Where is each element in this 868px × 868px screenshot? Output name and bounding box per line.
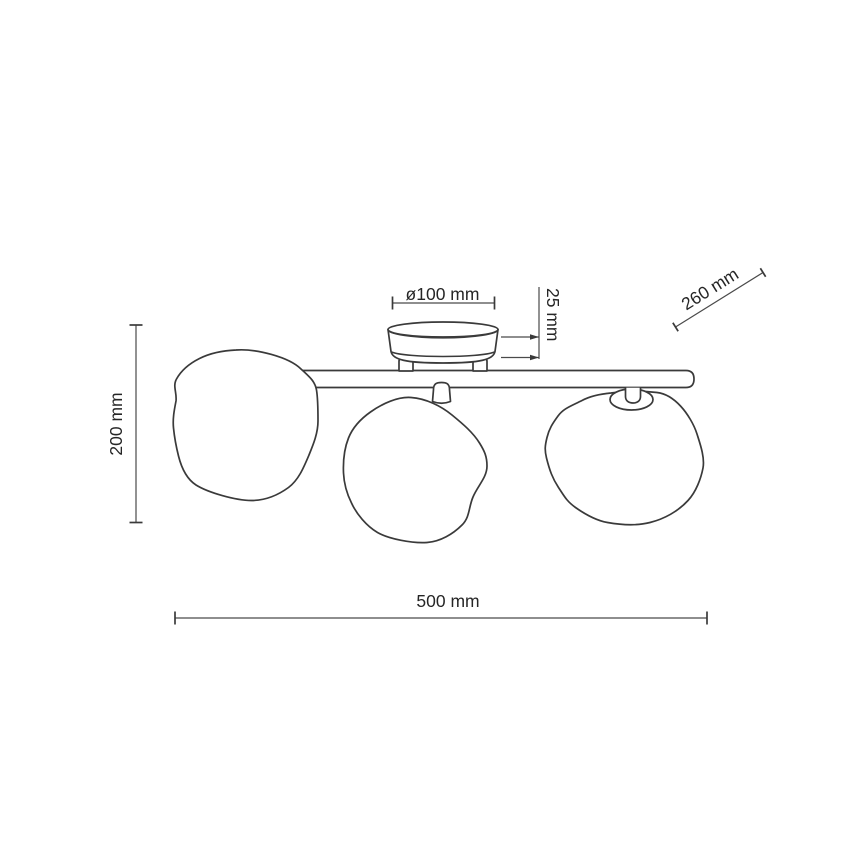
dimension-shade-diameter: 260 mm xyxy=(673,264,766,332)
shade-left xyxy=(173,350,318,501)
shade-middle-outline xyxy=(343,397,487,542)
shade-middle xyxy=(343,383,487,543)
socket-middle xyxy=(433,383,451,404)
dimension-fixture-width: 500 mm xyxy=(175,591,707,625)
shade-diameter-tick-right xyxy=(760,268,765,276)
canopy-height-arrow-bottom xyxy=(530,355,539,360)
dimension-fixture-height: 200 mm xyxy=(106,325,143,523)
technical-drawing-canvas: ø100 mm 25 mm 260 mm 200 mm xyxy=(0,0,868,868)
shade-right-outline xyxy=(545,391,703,524)
ceiling-canopy xyxy=(388,322,498,371)
canopy-height-label: 25 mm xyxy=(543,288,563,341)
shade-diameter-tick-left xyxy=(673,323,678,331)
fixture-height-label: 200 mm xyxy=(106,392,126,455)
shade-right xyxy=(545,388,703,525)
canopy-height-arrow-top xyxy=(530,334,539,339)
shade-diameter-label: 260 mm xyxy=(678,264,742,314)
ceiling-lamp-dimension-drawing: ø100 mm 25 mm 260 mm 200 mm xyxy=(0,0,868,868)
canopy-top-face xyxy=(388,322,498,337)
dimension-canopy-diameter: ø100 mm xyxy=(393,284,495,310)
canopy-diameter-label: ø100 mm xyxy=(406,284,480,304)
mounting-bar-body xyxy=(285,371,694,388)
shade-left-outline xyxy=(173,350,318,501)
fixture-width-label: 500 mm xyxy=(416,591,479,611)
mounting-bar xyxy=(285,371,694,388)
dimension-canopy-height: 25 mm xyxy=(501,287,563,360)
socket-right xyxy=(626,388,641,403)
